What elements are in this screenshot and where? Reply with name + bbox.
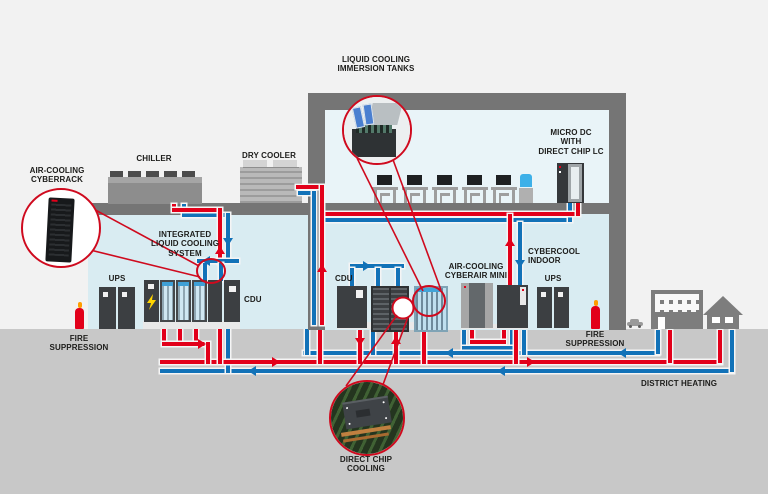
label-cdu-mid: CDU xyxy=(335,274,365,283)
fire-extinguisher-icon xyxy=(75,308,84,329)
lightning-bolt-icon xyxy=(146,294,157,310)
chiller-unit xyxy=(108,177,202,204)
label-cdu-left: CDU xyxy=(244,295,274,304)
dry-cooler-unit xyxy=(240,167,302,203)
office-desk-row xyxy=(372,175,517,203)
liquid-cooling-rack-1 xyxy=(160,280,175,322)
water-cooler-icon xyxy=(519,174,533,203)
cpu-cold-plate-photo xyxy=(331,382,403,454)
label-district-heating: DISTRICT HEATING xyxy=(641,379,733,388)
desk-with-monitor xyxy=(432,175,458,203)
label-direct-chip-cooling: DIRECT CHIP COOLING xyxy=(325,455,407,474)
label-immersion-tanks: LIQUID COOLING IMMERSION TANKS xyxy=(324,55,428,74)
cdu-mid-unit xyxy=(337,286,367,328)
district-cold-riser-house xyxy=(730,330,734,372)
liquid-cooling-rack-2 xyxy=(176,280,191,322)
office-building-icon xyxy=(651,290,703,329)
server-rack-2 xyxy=(389,286,409,332)
desk-with-monitor xyxy=(462,175,488,203)
immersion-tank-photo xyxy=(344,97,410,163)
label-integrated-lcs: INTEGRATED LIQUID COOLING SYSTEM xyxy=(148,230,222,258)
immersion-tank-rack xyxy=(414,286,448,332)
label-chiller: CHILLER xyxy=(118,154,190,163)
cyberair-mini-unit xyxy=(461,283,493,328)
ups-right-cabinet-1 xyxy=(537,287,552,328)
district-hot-riser-house xyxy=(718,330,722,363)
cyberrack-photo-callout xyxy=(21,188,101,268)
label-fire-suppression-left: FIRE SUPPRESSION xyxy=(43,334,115,353)
label-micro-dc: MICRO DC WITH DIRECT CHIP LC xyxy=(523,128,619,156)
power-distribution-rack xyxy=(144,280,159,322)
direct-chip-photo-callout xyxy=(329,380,405,456)
micro-dc-rack xyxy=(557,163,584,203)
label-air-cooling-cyberrack: AIR-COOLING CYBERRACK xyxy=(17,166,97,185)
label-cyberair-mini: AIR-COOLING CYBERAIR MINI xyxy=(432,262,520,281)
server-rack-photo xyxy=(45,197,74,262)
car-icon xyxy=(627,319,643,329)
ups-left-cabinet-2 xyxy=(118,287,135,329)
dry-cooler-fan-caps xyxy=(243,160,299,168)
label-ups-right: UPS xyxy=(536,274,570,283)
ups-left-cabinet-1 xyxy=(99,287,116,329)
immersion-tank-photo-callout xyxy=(342,95,412,165)
ups-right-cabinet-2 xyxy=(554,287,569,328)
cold-return-lower-pipe xyxy=(160,369,734,373)
label-cybercool-indoor: CYBERCOOL INDOOR xyxy=(528,247,588,266)
liquid-cooling-rack-3 xyxy=(192,280,207,322)
desk-with-monitor xyxy=(491,175,517,203)
server-rack-1 xyxy=(371,286,391,332)
label-ups-left: UPS xyxy=(100,274,134,283)
district-cold-riser-office xyxy=(656,330,660,354)
cybercool-indoor-unit xyxy=(497,285,528,328)
label-dry-cooler: DRY COOLER xyxy=(233,151,305,160)
fire-extinguisher-icon xyxy=(591,306,600,329)
desk-with-monitor xyxy=(402,175,428,203)
cooling-system-diagram: AIR-COOLING CYBERRACK CHILLER DRY COOLER… xyxy=(0,0,768,494)
house-icon xyxy=(703,296,743,329)
monitor-icon xyxy=(377,175,392,185)
district-hot-riser-office xyxy=(668,330,672,363)
desk-with-monitor xyxy=(372,175,398,203)
chiller-fan-caps xyxy=(110,171,200,177)
cdu-left-unit xyxy=(224,280,240,322)
annex-server-rack xyxy=(208,280,222,322)
cold-return-upper-pipe xyxy=(303,351,659,355)
hot-main-pipe xyxy=(160,360,722,364)
label-fire-suppression-right: FIRE SUPPRESSION xyxy=(559,330,631,349)
